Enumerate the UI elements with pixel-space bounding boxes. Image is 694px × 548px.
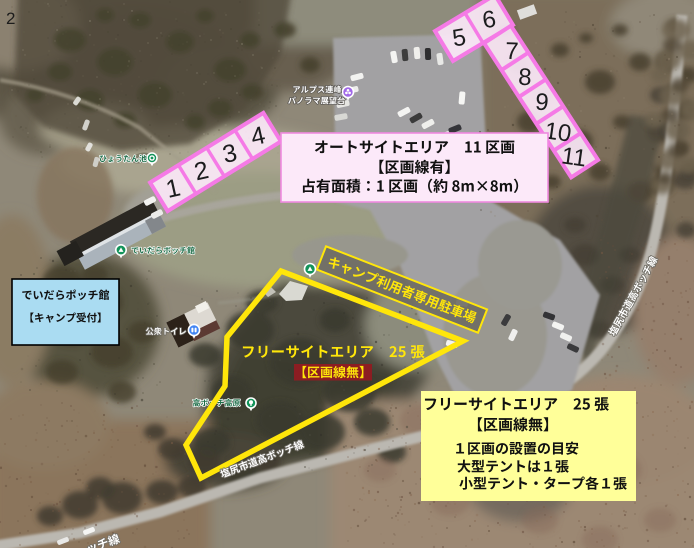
svg-text:9: 9 xyxy=(534,88,550,116)
svg-text:2: 2 xyxy=(6,9,15,28)
svg-text:8: 8 xyxy=(518,64,533,92)
svg-text:11: 11 xyxy=(560,142,588,172)
svg-text:7: 7 xyxy=(505,38,519,65)
